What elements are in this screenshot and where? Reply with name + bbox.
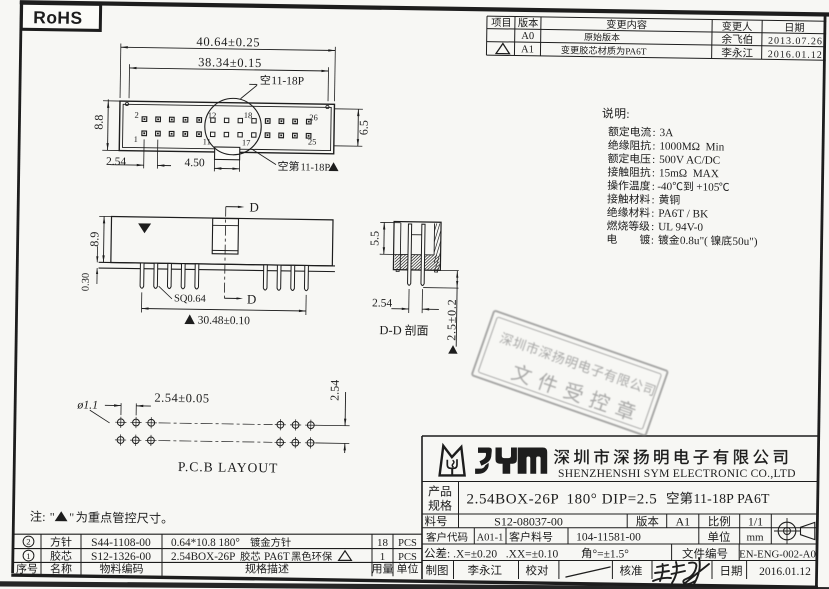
svg-text:PCS: PCS bbox=[398, 538, 417, 549]
svg-text:D: D bbox=[247, 291, 257, 306]
svg-text::: : bbox=[626, 107, 629, 121]
svg-text:2.54: 2.54 bbox=[372, 297, 393, 309]
svg-text:ø1.1: ø1.1 bbox=[76, 397, 98, 411]
svg-text::: : bbox=[651, 208, 654, 220]
svg-text:40.64±0.25: 40.64±0.25 bbox=[196, 35, 260, 50]
svg-text:EN-ENG-002-A0: EN-ENG-002-A0 bbox=[739, 549, 816, 561]
svg-text:SQ0.64: SQ0.64 bbox=[174, 293, 207, 304]
svg-text:-40: -40 bbox=[657, 181, 672, 193]
svg-text:1/1: 1/1 bbox=[748, 514, 763, 528]
svg-text:2.5±0.2: 2.5±0.2 bbox=[444, 298, 459, 340]
svg-text:18: 18 bbox=[377, 537, 389, 549]
svg-text:S12-1326-00: S12-1326-00 bbox=[91, 551, 151, 563]
svg-text:1: 1 bbox=[26, 551, 30, 561]
svg-text:SHENZHENSHI SYM ELECTRONIC CO.: SHENZHENSHI SYM ELECTRONIC CO.,LTD bbox=[558, 467, 796, 480]
svg-text:2.54±0.05: 2.54±0.05 bbox=[154, 391, 209, 406]
svg-text:15mΩ MAX: 15mΩ MAX bbox=[659, 167, 719, 180]
svg-text:4.50: 4.50 bbox=[184, 157, 205, 169]
svg-text:26: 26 bbox=[309, 112, 318, 122]
svg-text:2016.01.12: 2016.01.12 bbox=[759, 566, 811, 578]
svg-text:A1: A1 bbox=[675, 514, 690, 528]
svg-text::: : bbox=[652, 167, 655, 179]
svg-text:18: 18 bbox=[244, 110, 253, 120]
svg-text:UL 94V-0: UL 94V-0 bbox=[658, 221, 703, 234]
svg-text:D: D bbox=[249, 200, 259, 215]
svg-text:PA6T: PA6T bbox=[625, 46, 647, 56]
svg-text::: : bbox=[651, 235, 654, 247]
svg-text:2: 2 bbox=[26, 537, 30, 547]
svg-text:8.8: 8.8 bbox=[92, 115, 106, 130]
svg-text:6.5: 6.5 bbox=[357, 120, 371, 135]
svg-text:+105: +105 bbox=[696, 181, 720, 193]
svg-text:PA6T / BK: PA6T / BK bbox=[658, 208, 708, 221]
svg-text:30.48±0.10: 30.48±0.10 bbox=[198, 315, 251, 328]
svg-text:50u"): 50u") bbox=[732, 236, 758, 248]
svg-text:38.34±0.15: 38.34±0.15 bbox=[198, 55, 262, 70]
svg-text:11-18P: 11-18P bbox=[300, 162, 330, 173]
svg-text:104-11581-00: 104-11581-00 bbox=[576, 532, 641, 544]
svg-text::: : bbox=[652, 140, 655, 152]
svg-text:5.5: 5.5 bbox=[367, 231, 381, 246]
svg-text:0.64*10.8 180°: 0.64*10.8 180° bbox=[171, 537, 240, 549]
svg-text:P.C.B LAYOUT: P.C.B LAYOUT bbox=[178, 459, 279, 476]
svg-text:8.9: 8.9 bbox=[87, 232, 101, 247]
svg-text:2016.01.12: 2016.01.12 bbox=[768, 49, 823, 61]
svg-text:A01-1: A01-1 bbox=[477, 533, 504, 544]
svg-text:mm: mm bbox=[746, 532, 764, 544]
svg-text:1: 1 bbox=[134, 134, 138, 144]
svg-text:2.54: 2.54 bbox=[106, 156, 127, 168]
svg-text:500V AC/DC: 500V AC/DC bbox=[659, 154, 720, 167]
svg-text:17: 17 bbox=[242, 137, 251, 147]
svg-text:180° DIP=2.5: 180° DIP=2.5 bbox=[567, 492, 658, 508]
svg-text:RoHS: RoHS bbox=[33, 7, 83, 28]
svg-text:2: 2 bbox=[134, 110, 138, 120]
svg-text:2.54BOX-26P: 2.54BOX-26P bbox=[467, 492, 560, 508]
svg-text:A0: A0 bbox=[521, 31, 534, 42]
svg-text:11-18P PA6T: 11-18P PA6T bbox=[694, 491, 771, 506]
svg-text:°=±1.5°: °=±1.5° bbox=[593, 548, 630, 560]
svg-text:1: 1 bbox=[380, 551, 386, 563]
svg-text:0.8u"(: 0.8u"( bbox=[680, 235, 708, 247]
svg-text:": " bbox=[50, 510, 55, 524]
svg-text:PA6T: PA6T bbox=[264, 551, 290, 563]
svg-text:1000MΩ Min: 1000MΩ Min bbox=[659, 141, 724, 154]
svg-text:D-D: D-D bbox=[379, 323, 401, 337]
svg-text:2013.07.26: 2013.07.26 bbox=[768, 36, 823, 48]
svg-text::: : bbox=[652, 154, 655, 166]
svg-text:3A: 3A bbox=[659, 127, 673, 139]
svg-text:S12-08037-00: S12-08037-00 bbox=[494, 514, 563, 528]
svg-text::: : bbox=[652, 181, 655, 193]
svg-text:2.54BOX-26P: 2.54BOX-26P bbox=[171, 551, 235, 563]
svg-text:": " bbox=[69, 510, 74, 524]
svg-text:11-18P: 11-18P bbox=[271, 75, 304, 87]
svg-text::: : bbox=[652, 127, 655, 139]
svg-text:0.30: 0.30 bbox=[81, 273, 92, 292]
svg-text:S44-1108-00: S44-1108-00 bbox=[91, 537, 151, 549]
svg-text::: : bbox=[651, 194, 654, 206]
svg-text:: .X=±0.20 .XX=±0.10: : .X=±0.20 .XX=±0.10 bbox=[447, 548, 558, 560]
svg-text::: : bbox=[651, 221, 654, 233]
svg-text:A1: A1 bbox=[521, 44, 534, 55]
svg-text:25: 25 bbox=[308, 137, 317, 147]
svg-text:PCS: PCS bbox=[398, 552, 417, 563]
svg-text::: : bbox=[42, 510, 46, 524]
svg-text:2.54: 2.54 bbox=[327, 380, 341, 401]
